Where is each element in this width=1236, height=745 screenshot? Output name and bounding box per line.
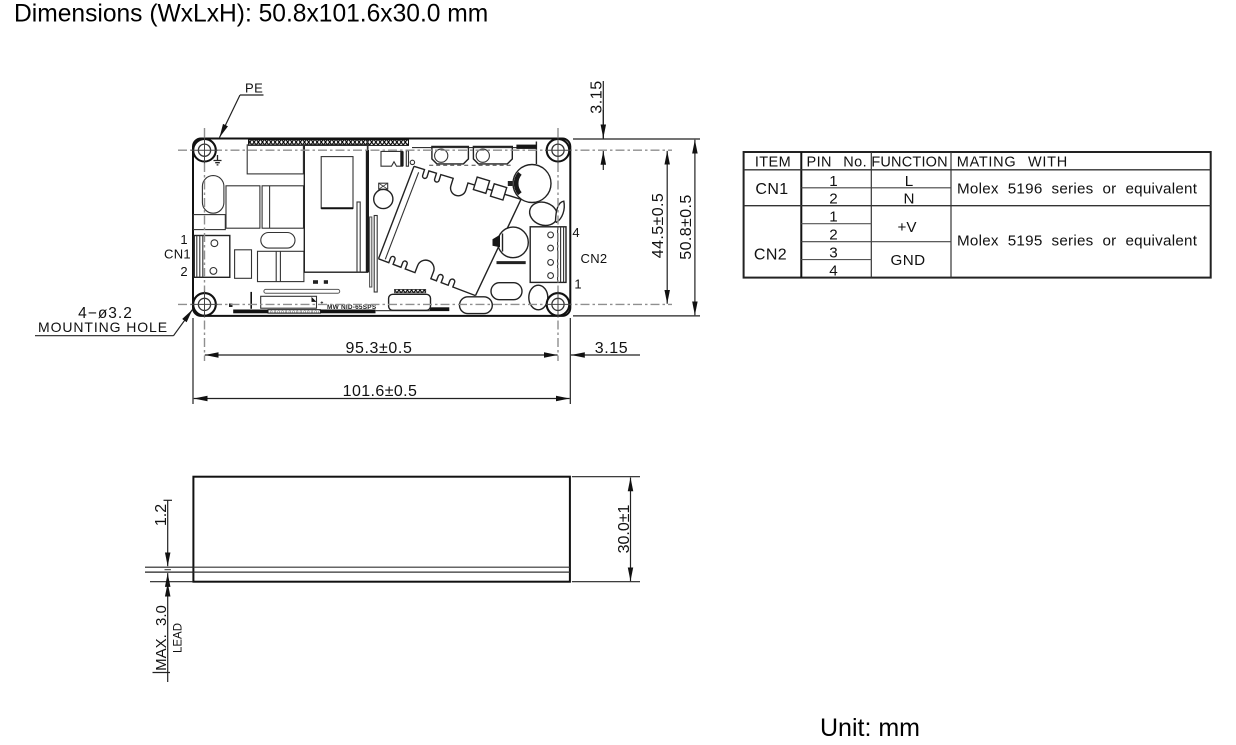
- svg-text:30.0±1: 30.0±1: [616, 504, 633, 553]
- svg-text:MAX. 3.0: MAX. 3.0: [153, 605, 170, 671]
- svg-text:GND: GND: [891, 252, 926, 269]
- svg-text:Molex 5196 series or equivalen: Molex 5196 series or equivalent: [957, 181, 1198, 198]
- svg-text:ITEM: ITEM: [755, 155, 791, 171]
- svg-text:50.8±0.5: 50.8±0.5: [678, 194, 695, 259]
- svg-text:PIN No.: PIN No.: [807, 155, 868, 171]
- svg-text:2: 2: [829, 227, 837, 244]
- svg-text:3.15: 3.15: [589, 80, 606, 114]
- svg-text:1: 1: [180, 232, 187, 247]
- svg-text:2: 2: [829, 191, 837, 208]
- svg-text:Unit: mm: Unit: mm: [820, 714, 920, 742]
- svg-text:1: 1: [829, 209, 837, 226]
- svg-text:FUNCTION: FUNCTION: [871, 155, 948, 171]
- svg-text:N: N: [904, 191, 915, 208]
- svg-text:oooooooooooooo: oooooooooooooo: [270, 309, 322, 314]
- svg-text:MOUNTING HOLE: MOUNTING HOLE: [38, 319, 168, 335]
- svg-text:MATING WITH: MATING WITH: [957, 155, 1068, 171]
- svg-text:Molex 5195 series or equivalen: Molex 5195 series or equivalent: [957, 233, 1198, 250]
- svg-text:101.6±0.5: 101.6±0.5: [343, 383, 418, 400]
- svg-text:CN2: CN2: [581, 251, 608, 266]
- svg-text:44.5±0.5: 44.5±0.5: [650, 193, 667, 258]
- svg-text:CN2: CN2: [754, 246, 787, 263]
- svg-text:PE: PE: [245, 81, 263, 96]
- svg-text:1.2: 1.2: [153, 504, 170, 526]
- svg-text:3: 3: [829, 245, 837, 262]
- svg-text:1: 1: [829, 173, 837, 190]
- svg-text:3.15: 3.15: [595, 340, 629, 357]
- svg-text:L: L: [905, 173, 913, 190]
- svg-text:95.3±0.5: 95.3±0.5: [346, 340, 413, 357]
- svg-text:4: 4: [572, 225, 579, 240]
- svg-text:CN1: CN1: [164, 246, 191, 261]
- svg-text:Dimensions (WxLxH): 50.8x101.6: Dimensions (WxLxH): 50.8x101.6x30.0 mm: [14, 1, 488, 28]
- svg-text:4: 4: [829, 263, 837, 280]
- svg-text:1: 1: [574, 277, 581, 292]
- svg-text:LEAD: LEAD: [173, 623, 185, 653]
- svg-text:+V: +V: [898, 219, 918, 236]
- svg-text:2: 2: [180, 264, 187, 279]
- svg-text:CN1: CN1: [755, 181, 788, 198]
